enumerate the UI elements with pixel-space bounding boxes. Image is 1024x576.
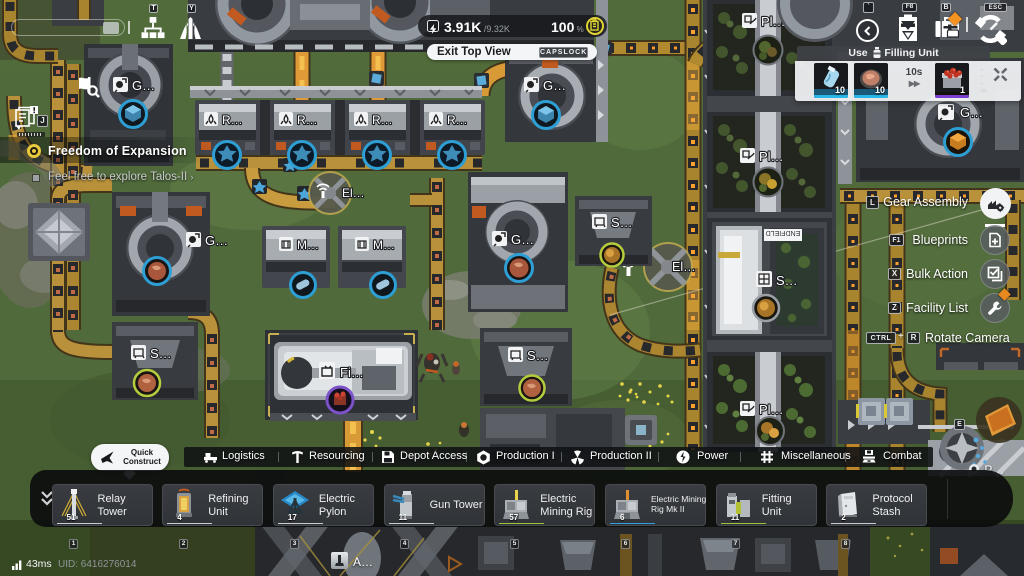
svg-text:R…: R… — [447, 113, 468, 127]
svg-text:M…: M… — [373, 238, 395, 252]
svg-text:G…: G… — [132, 78, 155, 93]
svg-text:G…: G… — [960, 105, 983, 120]
svg-text:R…: R… — [297, 113, 318, 127]
svg-text:M…: M… — [297, 238, 319, 252]
svg-text:El…: El… — [672, 260, 696, 274]
svg-text:El…: El… — [342, 186, 365, 200]
svg-text:G…: G… — [543, 78, 566, 93]
svg-text:R…: R… — [372, 113, 393, 127]
svg-text:R…: R… — [222, 113, 243, 127]
svg-text:Pl…: Pl… — [759, 402, 784, 417]
svg-text:S…: S… — [611, 215, 633, 230]
svg-text:S…: S… — [150, 346, 172, 361]
svg-text:Pl…: Pl… — [759, 149, 784, 164]
svg-text:G…: G… — [205, 233, 228, 248]
svg-text:Fi…: Fi… — [340, 365, 364, 380]
svg-text:G…: G… — [511, 232, 534, 247]
svg-text:S…: S… — [527, 348, 549, 363]
